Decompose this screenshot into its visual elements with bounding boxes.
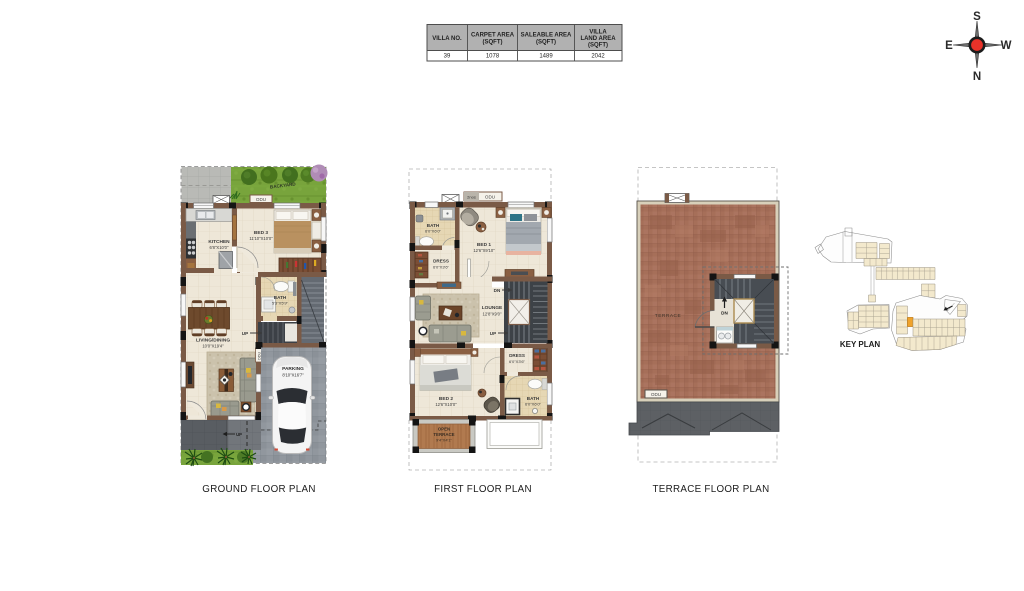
- svg-text:(SQFT): (SQFT): [483, 40, 503, 46]
- svg-text:S: S: [973, 11, 981, 23]
- svg-text:DN: DN: [721, 311, 728, 316]
- svg-text:FIRST FLOOR PLAN: FIRST FLOOR PLAN: [434, 484, 532, 495]
- svg-text:12'8"X9'0": 12'8"X9'0": [482, 312, 502, 317]
- svg-text:LAND AREA: LAND AREA: [580, 36, 616, 42]
- svg-text:2042: 2042: [591, 54, 605, 60]
- svg-text:12'6"X9'10": 12'6"X9'10": [473, 248, 495, 253]
- svg-text:UP: UP: [236, 432, 242, 437]
- svg-text:39: 39: [444, 54, 451, 60]
- svg-text:BATH: BATH: [274, 295, 287, 300]
- svg-text:E: E: [945, 40, 953, 52]
- svg-text:10'0"X19'4": 10'0"X19'4": [202, 344, 224, 349]
- svg-text:ODU: ODU: [485, 195, 495, 200]
- svg-text:SALEABLE AREA: SALEABLE AREA: [521, 33, 572, 39]
- svg-text:12'6"X10'0": 12'6"X10'0": [435, 402, 457, 407]
- svg-text:CARPET AREA: CARPET AREA: [471, 33, 515, 39]
- svg-text:GROUND FLOOR PLAN: GROUND FLOOR PLAN: [202, 484, 315, 495]
- svg-text:TERRACE FLOOR PLAN: TERRACE FLOOR PLAN: [653, 484, 770, 495]
- svg-text:6'0"X6'0": 6'0"X6'0": [525, 402, 542, 407]
- svg-text:1078: 1078: [486, 54, 500, 60]
- svg-text:2nos: 2nos: [467, 195, 476, 200]
- svg-text:5'3"X5'9": 5'3"X5'9": [272, 301, 289, 306]
- svg-text:BATH: BATH: [527, 396, 540, 401]
- svg-text:6'8"X10'0": 6'8"X10'0": [209, 245, 229, 250]
- svg-text:DRESS: DRESS: [509, 353, 525, 358]
- svg-text:N: N: [973, 71, 981, 83]
- svg-text:PARKING: PARKING: [282, 366, 304, 372]
- svg-text:6'0"X3'6": 6'0"X3'6": [509, 359, 526, 364]
- svg-text:VILLA: VILLA: [589, 30, 607, 36]
- svg-text:8'10"X16'7": 8'10"X16'7": [282, 373, 304, 378]
- svg-text:9'4"X4'1": 9'4"X4'1": [436, 438, 453, 443]
- svg-text:KEY PLAN: KEY PLAN: [840, 340, 881, 349]
- svg-text:OPEN: OPEN: [438, 427, 450, 432]
- svg-text:W: W: [1001, 40, 1012, 52]
- svg-text:ODU: ODU: [256, 197, 266, 202]
- svg-text:TERRACE: TERRACE: [655, 313, 681, 319]
- svg-text:BATH: BATH: [427, 223, 440, 228]
- svg-text:TERRACE: TERRACE: [433, 432, 454, 437]
- svg-text:6'0"X6'0": 6'0"X6'0": [425, 229, 442, 234]
- svg-text:DN: DN: [494, 288, 501, 293]
- svg-text:1489: 1489: [539, 54, 553, 60]
- svg-text:UP: UP: [242, 331, 248, 336]
- svg-text:11'10"X10'0": 11'10"X10'0": [249, 236, 273, 241]
- svg-text:VILLA NO.: VILLA NO.: [432, 36, 462, 42]
- svg-text:(SQFT): (SQFT): [588, 43, 608, 49]
- svg-text:ODU: ODU: [258, 352, 262, 361]
- svg-text:ODU: ODU: [651, 392, 661, 397]
- svg-text:UP: UP: [490, 331, 496, 336]
- svg-text:(SQFT): (SQFT): [536, 40, 556, 46]
- svg-text:LOUNGE: LOUNGE: [482, 305, 503, 311]
- svg-text:6'0"X3'6": 6'0"X3'6": [433, 265, 450, 270]
- svg-text:DRESS: DRESS: [433, 259, 449, 264]
